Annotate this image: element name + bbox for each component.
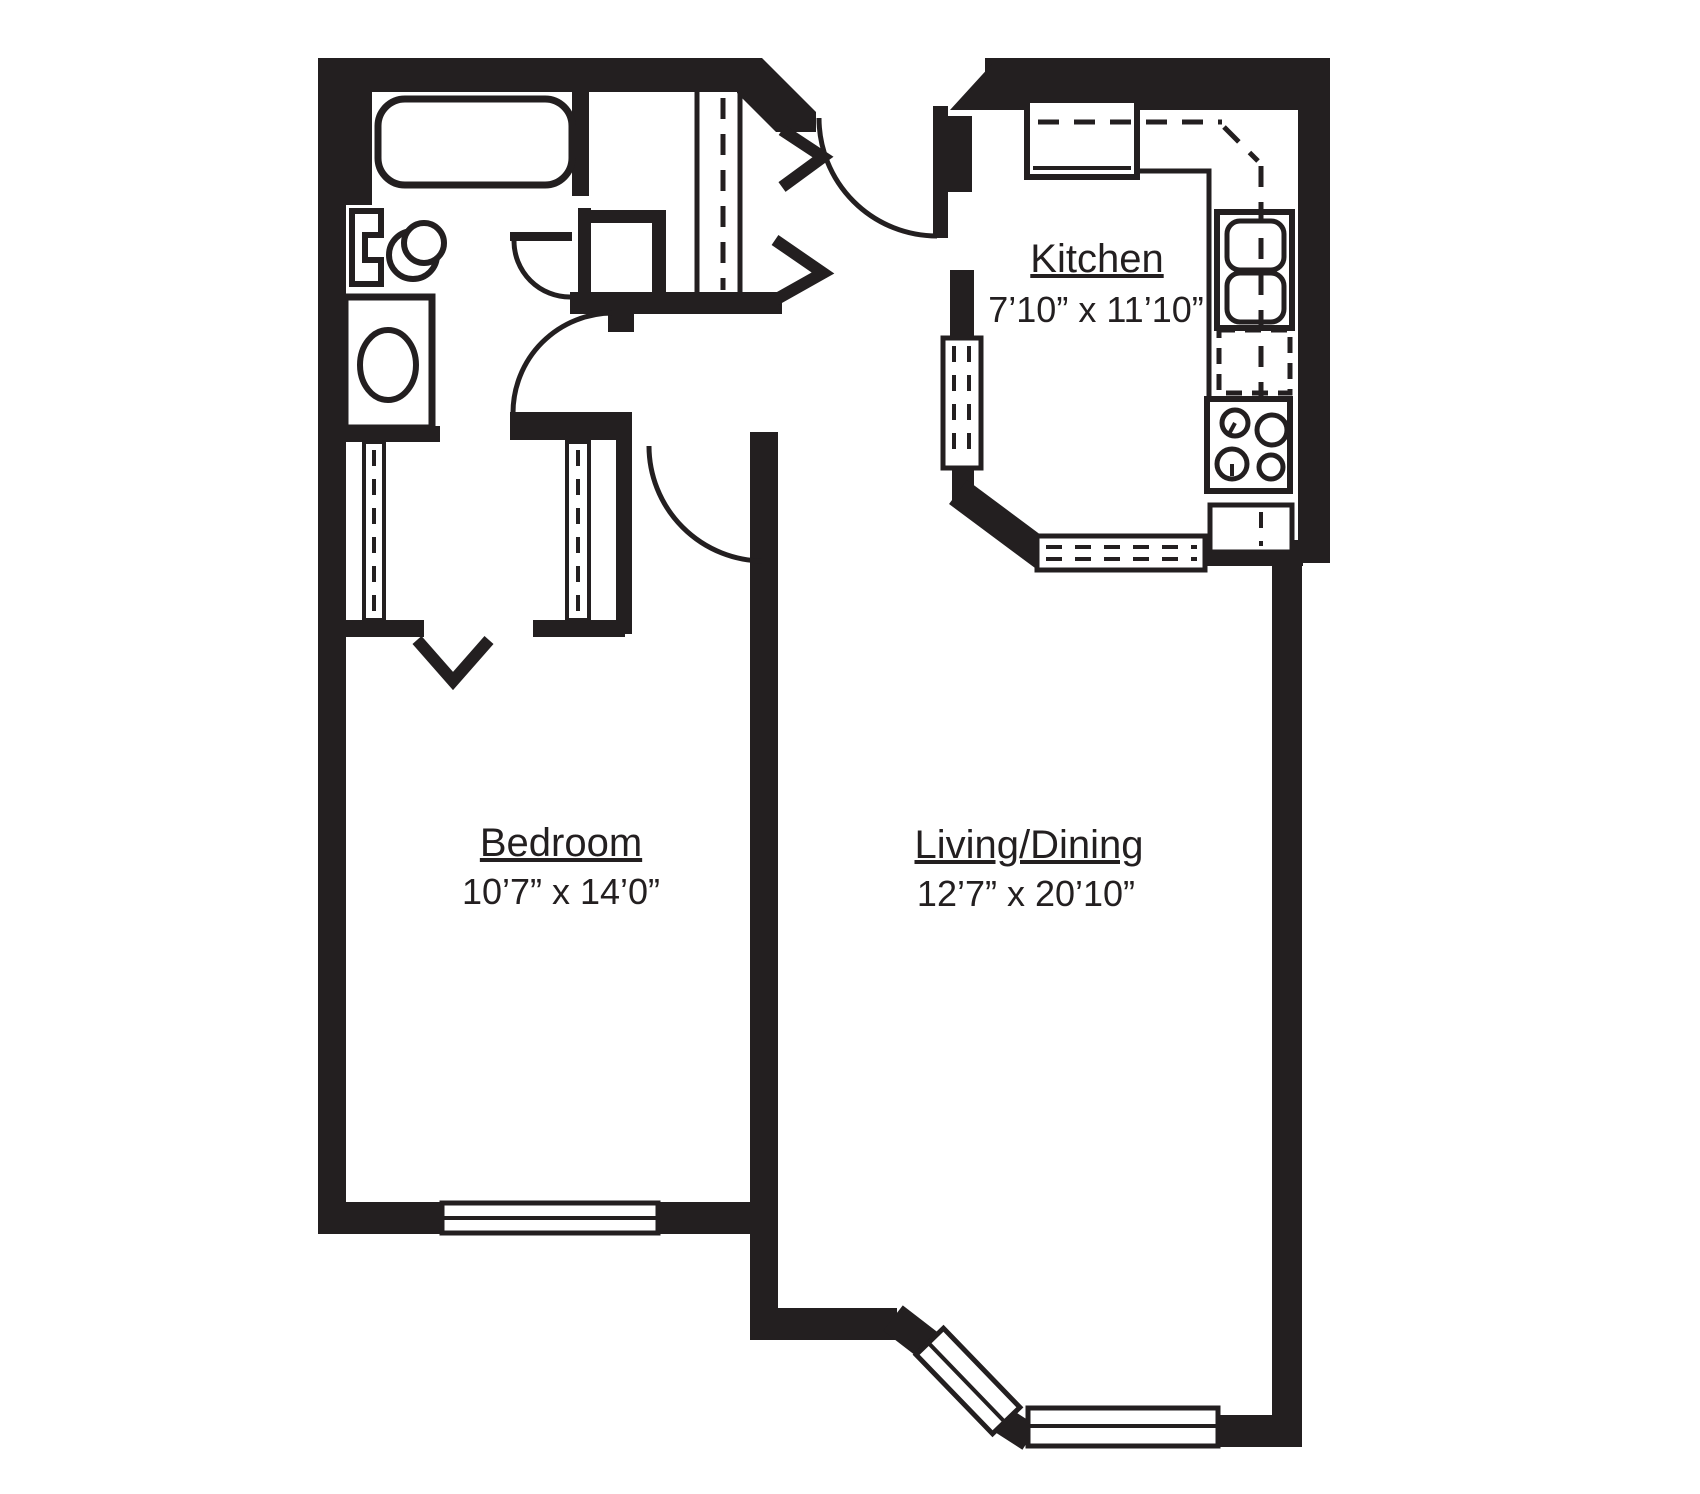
kitchen-left-wall <box>948 116 972 192</box>
floor-plan-page: Kitchen 7’10” x 11’10” Bedroom 10’7” x 1… <box>0 0 1700 1494</box>
door-leaf-tick <box>608 306 634 332</box>
entry-chevron <box>782 130 823 187</box>
bathroom-door-leaf <box>510 232 572 241</box>
bedroom-label: Bedroom <box>480 821 642 865</box>
wall-segment <box>318 58 346 1234</box>
entry-door-swing-arc <box>819 118 937 236</box>
entry-diagonal-wall <box>737 58 816 132</box>
living-window <box>1028 1408 1218 1446</box>
room-divider-wall <box>750 432 778 1326</box>
wall-segment <box>318 1202 444 1234</box>
base-cabinet <box>1210 505 1292 552</box>
bedroom-window <box>442 1203 658 1233</box>
living-dining-dimensions: 12’7” x 20’10” <box>917 873 1135 914</box>
wall-segment <box>318 58 737 92</box>
kitchen-sink <box>1217 212 1292 328</box>
hall-door-swing-arc <box>513 313 613 413</box>
floor-plan-drawing: Kitchen 7’10” x 11’10” Bedroom 10’7” x 1… <box>0 0 1700 1494</box>
coat-closet <box>697 92 740 292</box>
chase-wall <box>652 210 666 302</box>
living-diagonal-window <box>916 1328 1020 1434</box>
burner <box>1259 455 1283 479</box>
corridor-wall <box>616 420 632 634</box>
wall-segment <box>570 292 782 314</box>
wall-segment <box>1218 1415 1278 1447</box>
walls <box>318 58 1330 1447</box>
wall-segment <box>1272 545 1302 1447</box>
bedroom-closet <box>364 442 589 681</box>
counter-edge <box>1137 171 1209 397</box>
bedroom-door-wall <box>510 412 632 440</box>
wall-segment <box>656 1202 778 1234</box>
bathroom-door-swing-arc <box>514 241 570 297</box>
bedroom-dimensions: 10’7” x 14’0” <box>462 871 660 912</box>
kitchen-dimensions: 7’10” x 11’10” <box>988 289 1203 330</box>
closet-front-wall <box>318 620 424 637</box>
kitchen-pass-through <box>943 338 981 468</box>
toilet <box>352 211 444 284</box>
bedroom-door-swing-arc <box>649 446 764 561</box>
refrigerator <box>1027 100 1137 177</box>
wall-segment <box>893 1318 928 1345</box>
kitchen-diagonal-wall <box>958 492 1044 556</box>
kitchen-counter-window <box>1037 536 1205 570</box>
wall-segment <box>346 58 372 205</box>
wall-segment <box>750 1308 897 1340</box>
dishwasher <box>1219 330 1290 393</box>
kitchen-left-wall <box>950 270 974 338</box>
bathtub <box>378 99 572 185</box>
living-dining-label: Living/Dining <box>914 823 1143 867</box>
bathroom <box>345 99 572 428</box>
kitchen-label: Kitchen <box>1030 237 1163 281</box>
wall-segment <box>1298 58 1330 563</box>
closet-front-wall <box>533 620 625 637</box>
entry-jamb <box>933 106 948 238</box>
stove <box>1207 399 1290 491</box>
burner <box>1257 415 1287 445</box>
entry-chevron <box>775 240 823 300</box>
closet-entry-arrow <box>417 640 489 681</box>
washer <box>345 297 432 428</box>
entry-diagonal-wall <box>950 64 1030 110</box>
